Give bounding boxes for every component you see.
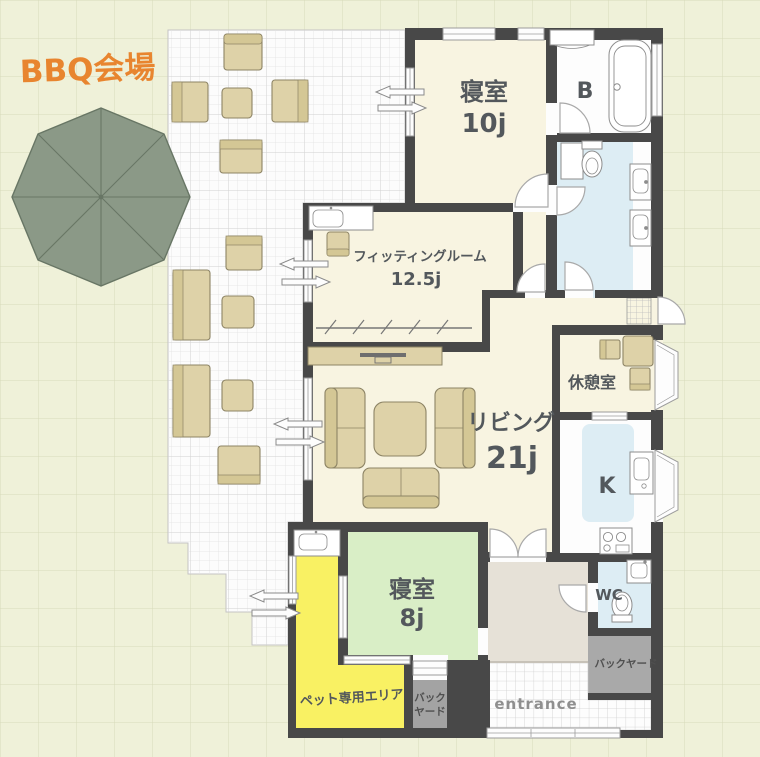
bath-vanity	[550, 30, 594, 45]
wc-label: WC	[595, 586, 623, 604]
bath-label: B	[577, 79, 594, 104]
fitting-room-size-label: 12.5j	[391, 269, 442, 290]
entrance-label: entrance	[494, 695, 577, 713]
floor-plan-page: BBQ会場 寝室 10j B フィッティングルーム 12.5j 休憩室 リビング…	[0, 0, 760, 757]
table-icon	[222, 380, 253, 411]
backyard-right-label: バックヤード	[595, 658, 658, 670]
kitchen-mat	[582, 424, 634, 522]
living-size-label: 21j	[486, 441, 538, 476]
table-icon	[222, 296, 254, 328]
backyard-small-label-1: バック	[414, 692, 446, 704]
bedroom8-size-label: 8j	[400, 604, 425, 632]
table-icon	[222, 88, 252, 118]
table-icon	[623, 336, 653, 366]
bedroom10-label: 寝室	[460, 78, 508, 106]
tv-board	[308, 347, 442, 365]
washing-machine-icon	[561, 143, 583, 179]
backyard-small-floor	[412, 680, 448, 730]
living-label: リビング	[467, 410, 555, 436]
bbq-area-label: BBQ会場	[19, 50, 156, 91]
pet-sink	[294, 530, 340, 556]
hall-floor	[488, 558, 588, 663]
fitting-room-label: フィッティングルーム	[353, 248, 487, 265]
table-icon	[374, 402, 426, 456]
rest-room-label: 休憩室	[567, 373, 616, 392]
toilet-icon	[582, 151, 602, 177]
kitchen-label: K	[598, 474, 616, 499]
backyard-small-label-2: ヤード	[414, 706, 446, 718]
bedroom10-size-label: 10j	[461, 109, 506, 139]
toilet-tank	[582, 141, 602, 149]
bedroom8-label: 寝室	[389, 576, 435, 603]
umbrella-icon	[12, 108, 190, 286]
floor-plan: BBQ会場 寝室 10j B フィッティングルーム 12.5j 休憩室 リビング…	[0, 0, 760, 757]
wc-toilet-seat	[612, 615, 632, 622]
back-door-mat	[627, 298, 651, 324]
tv-icon	[360, 353, 406, 357]
